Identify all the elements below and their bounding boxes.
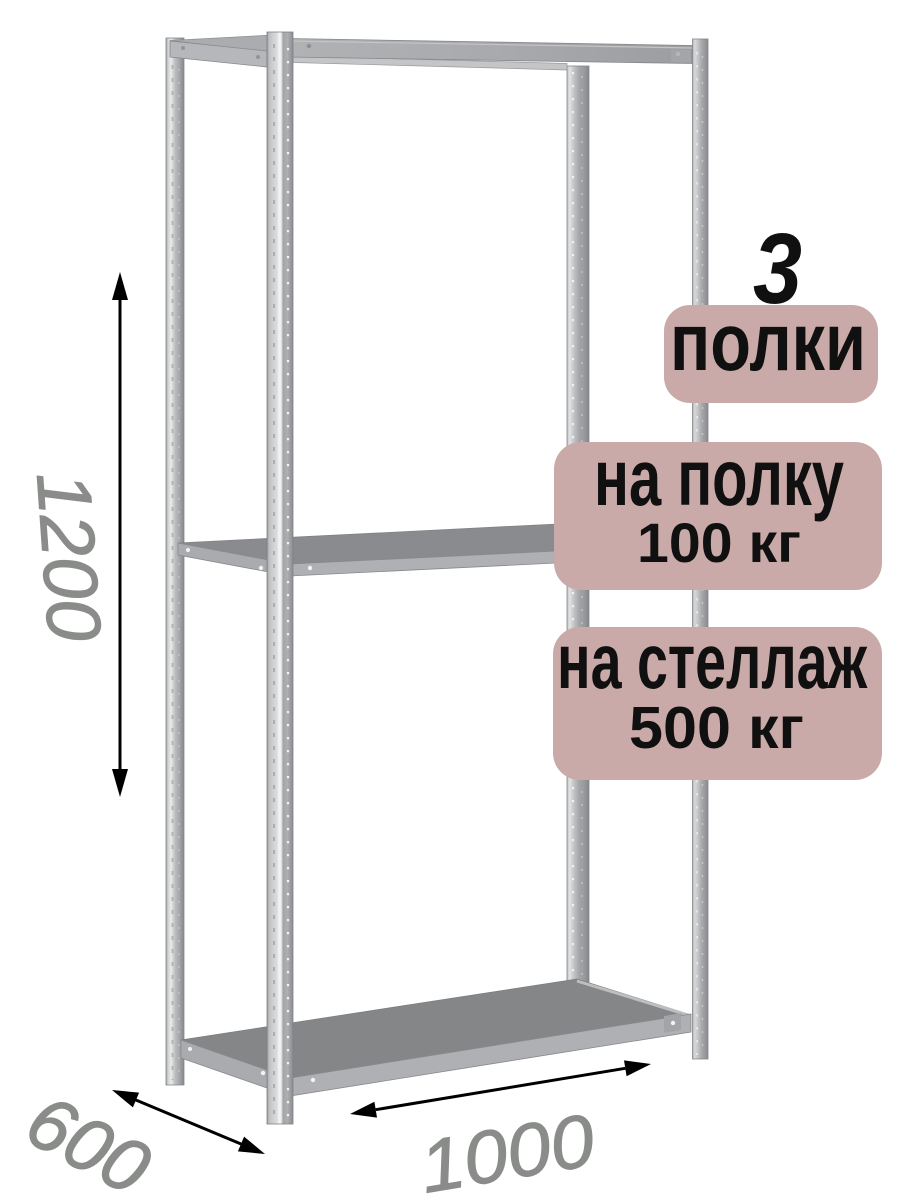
svg-text:500 кг: 500 кг bbox=[629, 695, 804, 761]
svg-text:1000: 1000 bbox=[414, 1098, 600, 1200]
svg-text:на полку: на полку bbox=[594, 433, 844, 522]
svg-text:1200: 1200 bbox=[20, 469, 117, 644]
svg-text:на стеллаж: на стеллаж bbox=[557, 617, 867, 705]
svg-text:полки: полки bbox=[670, 297, 866, 388]
svg-text:600: 600 bbox=[13, 1078, 163, 1200]
svg-text:100 кг: 100 кг bbox=[637, 511, 801, 574]
